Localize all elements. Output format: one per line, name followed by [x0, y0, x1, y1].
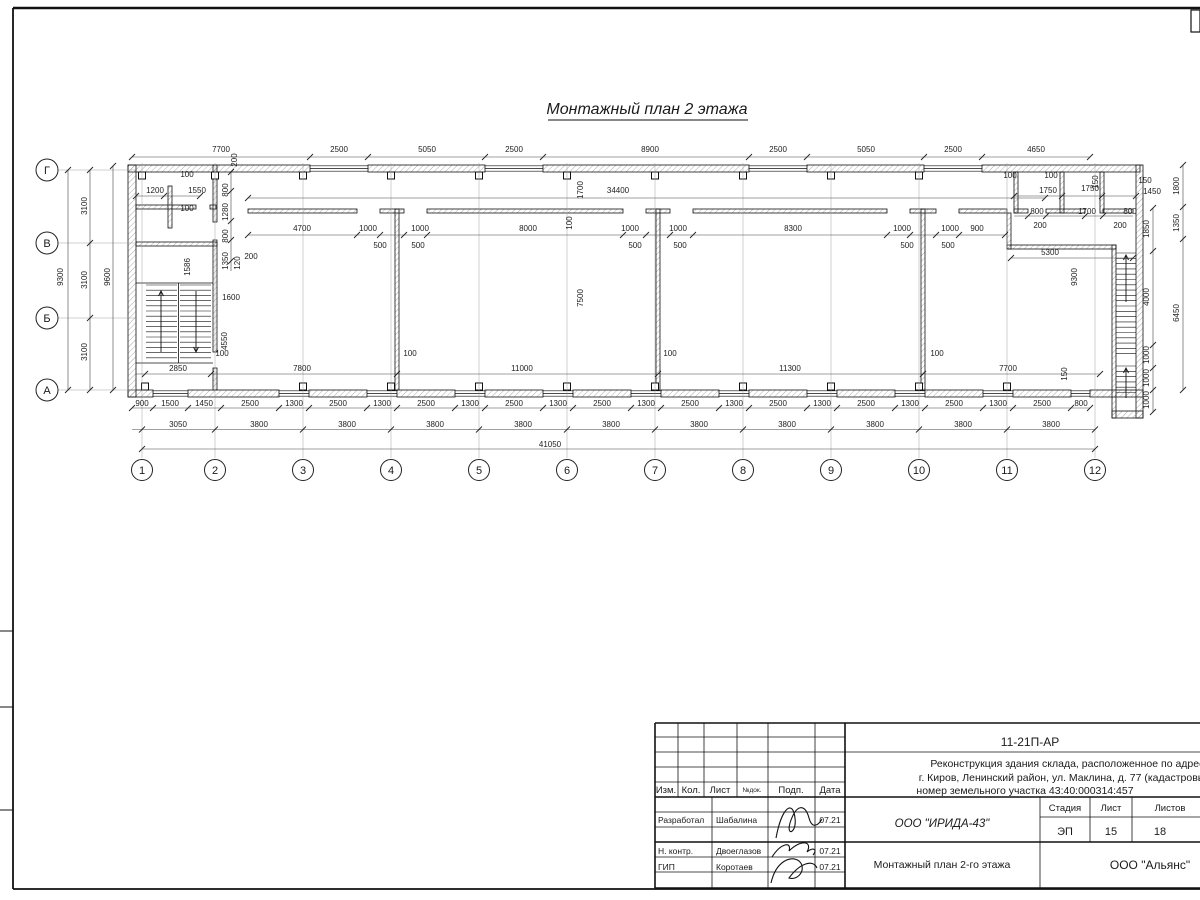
dim-label: 100: [403, 349, 417, 358]
dim-label: 500: [900, 241, 914, 250]
dim-label: 1000: [669, 224, 687, 233]
dim-label: 2500: [944, 145, 962, 154]
dim-label: 9600: [103, 268, 112, 286]
axis-number: 6: [564, 465, 570, 477]
tb-project-code: 11-21П-АР: [1001, 735, 1059, 749]
dim-label: 3100: [80, 343, 89, 361]
dim-label: 34400: [607, 186, 630, 195]
tb-col-list: Лист: [710, 785, 731, 796]
sheet-frame: [0, 8, 1200, 889]
wall: [959, 209, 1007, 213]
dim-label: 2500: [241, 399, 259, 408]
axis-number: 10: [913, 465, 925, 477]
dim-label: 8000: [519, 224, 537, 233]
wall: [1007, 245, 1116, 249]
axis-number: 4: [388, 465, 394, 477]
tb-date-1: 07.21: [819, 815, 841, 825]
dim-label: 5050: [857, 145, 875, 154]
dim-label: 900: [135, 399, 149, 408]
dim-label: 1000: [1142, 391, 1151, 409]
axis-number: 7: [652, 465, 658, 477]
title-block: Изм. Кол. Лист №док. Подп. Дата 11-21П-А…: [655, 723, 1200, 888]
dim-label: 1300: [637, 399, 655, 408]
tb-col-podp: Подп.: [778, 785, 803, 796]
axis-letter: А: [43, 385, 51, 397]
dim-label: 2500: [329, 399, 347, 408]
dim-label: 2500: [857, 399, 875, 408]
wall: [807, 165, 924, 172]
dim-label: 41050: [539, 440, 562, 449]
tb-project-line3: номер земельного участка 43:40:000314:45…: [916, 785, 1133, 797]
dim-label: 3100: [80, 197, 89, 215]
tb-project-line2: г. Киров, Ленинский район, ул. Маклина, …: [919, 772, 1200, 784]
dim-label: 2500: [330, 145, 348, 154]
dim-label: 6450: [1172, 304, 1181, 322]
dim-label: 1000: [411, 224, 429, 233]
dim-label: 4650: [1027, 145, 1045, 154]
wall: [309, 390, 367, 397]
dim-label: 1300: [725, 399, 743, 408]
dim-label: 800: [221, 183, 230, 197]
dim-label: 3800: [778, 420, 796, 429]
dim-label: 100: [180, 204, 194, 213]
drawing-sheet: Монтажный план 2 этажа 77002500505025008…: [0, 0, 1200, 900]
dim-label: 100: [1003, 171, 1017, 180]
dim-label: 3800: [602, 420, 620, 429]
dim-label: 3800: [1042, 420, 1060, 429]
dim-label: 4700: [293, 224, 311, 233]
dim-label: 2500: [505, 399, 523, 408]
dim-label: 1280: [221, 203, 230, 221]
dim-label: 7500: [576, 289, 585, 307]
frame-corner-box: [1191, 10, 1200, 32]
dim-label: 100: [1044, 171, 1058, 180]
dim-label: 1550: [188, 186, 206, 195]
wall: [128, 165, 136, 397]
dim-label: 1850: [1142, 220, 1151, 238]
dim-label: 100: [215, 349, 229, 358]
dim-label: 11300: [779, 364, 801, 373]
dim-label: 2500: [505, 145, 523, 154]
dim-label: 1000: [1142, 346, 1151, 364]
axis-number: 12: [1089, 465, 1101, 477]
dim-label: 8900: [641, 145, 659, 154]
dim-label: 5300: [1041, 248, 1059, 257]
dim-label: 2500: [681, 399, 699, 408]
dim-label: 3100: [80, 271, 89, 289]
wall: [661, 390, 719, 397]
dim-label: 11000: [511, 364, 533, 373]
dim-label: 3800: [514, 420, 532, 429]
dim-label: 1350: [221, 252, 230, 270]
wall: [368, 165, 485, 172]
dim-label: 1450: [1143, 187, 1161, 196]
dim-label: 1600: [222, 293, 240, 302]
wall: [910, 209, 936, 213]
tb-col-kol: Кол.: [682, 785, 701, 796]
dim-label: 3800: [866, 420, 884, 429]
wall: [1014, 209, 1028, 213]
tb-date-3: 07.21: [819, 862, 841, 872]
wall: [693, 209, 887, 213]
wall: [395, 209, 399, 390]
wall: [749, 390, 807, 397]
tb-col-data: Дата: [819, 785, 841, 796]
dim-label: 1300: [901, 399, 919, 408]
dim-label: 2500: [1033, 399, 1051, 408]
dim-label: 150: [1138, 176, 1152, 185]
tb-company: ООО "Альянс": [1110, 858, 1190, 872]
dim-label: 100: [663, 349, 677, 358]
wall: [573, 390, 631, 397]
tb-role-2: Н. контр.: [658, 846, 693, 856]
wall: [380, 209, 404, 213]
tb-name-2: Двоеглазов: [716, 846, 762, 856]
tb-name-1: Шабалина: [716, 815, 757, 825]
dim-label: 1700: [1078, 207, 1096, 216]
dim-label: 1000: [1142, 369, 1151, 387]
tb-date-2: 07.21: [819, 846, 841, 856]
dim-label: 120: [233, 256, 242, 270]
wall: [1090, 390, 1143, 397]
dim-label: 1350: [1172, 214, 1181, 232]
dim-label: 1000: [621, 224, 639, 233]
axis-number: 9: [828, 465, 834, 477]
wall: [921, 209, 925, 390]
wall: [646, 209, 670, 213]
dim-label: 3800: [426, 420, 444, 429]
dim-label: 100: [930, 349, 944, 358]
wall: [397, 390, 455, 397]
dim-label: 900: [970, 224, 984, 233]
dim-label: 2500: [593, 399, 611, 408]
tb-role-3: ГИП: [658, 862, 675, 872]
dim-label: 100: [565, 216, 574, 230]
dim-label: 1300: [813, 399, 831, 408]
dim-label: 5050: [418, 145, 436, 154]
dim-label: 1700: [576, 181, 585, 199]
dim-label: 8300: [784, 224, 802, 233]
wall: [837, 390, 895, 397]
dim-label: 100: [180, 170, 194, 179]
wall: [248, 209, 357, 213]
dim-label: 1000: [941, 224, 959, 233]
dim-label: 150: [1060, 367, 1069, 381]
axis-letter: В: [43, 238, 50, 250]
dim-label: 2500: [769, 399, 787, 408]
tb-col-izm: Изм.: [656, 785, 676, 796]
wall: [136, 242, 217, 246]
wall: [188, 390, 279, 397]
dim-label: 500: [628, 241, 642, 250]
axis-number: 8: [740, 465, 746, 477]
dim-label: 1300: [461, 399, 479, 408]
dim-label: 1800: [1172, 177, 1181, 195]
wall: [543, 165, 749, 172]
wall: [1112, 411, 1143, 418]
dim-label: 3800: [954, 420, 972, 429]
axis-letter: Б: [43, 313, 50, 325]
wall: [656, 209, 660, 390]
axis-number: 5: [476, 465, 482, 477]
tb-stage-value: ЭП: [1057, 826, 1073, 838]
wall: [1007, 213, 1011, 249]
dim-label: 9300: [1070, 268, 1079, 286]
dim-label: 200: [1113, 221, 1127, 230]
dim-label: 2500: [769, 145, 787, 154]
axis-number: 1: [139, 465, 145, 477]
dim-label: 3800: [250, 420, 268, 429]
tb-doc-title: Монтажный план 2-го этажа: [874, 859, 1011, 871]
signature-3: [771, 859, 817, 883]
dim-label: 500: [373, 241, 387, 250]
axis-number: 3: [300, 465, 306, 477]
dim-label: 1300: [373, 399, 391, 408]
dim-label: 7700: [999, 364, 1017, 373]
dim-label: 3800: [690, 420, 708, 429]
dim-label: 3050: [169, 420, 187, 429]
tb-project-line1: Реконструкция здания склада, расположенн…: [930, 758, 1200, 770]
dim-label: 800: [221, 229, 230, 243]
dim-label: 4000: [1142, 288, 1151, 306]
dim-label: 150: [1091, 175, 1100, 189]
tb-sheets-label: Листов: [1155, 803, 1186, 814]
dim-label: 1300: [989, 399, 1007, 408]
dim-label: 500: [411, 241, 425, 250]
wall: [485, 390, 543, 397]
dim-label: 1200: [146, 186, 164, 195]
tb-col-ndok: №док.: [742, 787, 761, 794]
wall: [925, 390, 983, 397]
tb-sheets-total: 18: [1154, 826, 1166, 838]
dim-label: 1500: [161, 399, 179, 408]
dim-label: 1300: [549, 399, 567, 408]
dim-label: 1450: [195, 399, 213, 408]
tb-stage-label: Стадия: [1049, 803, 1081, 814]
dim-label: 4550: [220, 332, 229, 350]
axis-number: 2: [212, 465, 218, 477]
dim-label: 1586: [183, 258, 192, 276]
dim-label: 200: [244, 252, 258, 261]
wall: [427, 209, 623, 213]
dim-label: 1000: [893, 224, 911, 233]
column: [142, 383, 149, 390]
axis-number: 11: [1001, 465, 1012, 477]
tb-sheet-number: 15: [1105, 826, 1117, 838]
dim-label: 2500: [945, 399, 963, 408]
tb-sheet-label: Лист: [1101, 803, 1122, 814]
dim-label: 800: [1074, 399, 1088, 408]
wall: [1060, 172, 1064, 213]
floor-plan: [128, 165, 1143, 418]
plan-title: Монтажный план 2 этажа: [546, 101, 747, 118]
dim-label: 2500: [417, 399, 435, 408]
dim-label: 1000: [359, 224, 377, 233]
dim-label: 7700: [212, 145, 230, 154]
axis-letter: Г: [44, 165, 50, 177]
wall: [1112, 245, 1116, 418]
dim-label: 1750: [1039, 186, 1057, 195]
dim-label: 800: [1123, 207, 1137, 216]
dim-label: 200: [1033, 221, 1047, 230]
wall: [168, 186, 172, 228]
tb-org: ООО "ИРИДА-43": [895, 818, 991, 830]
dim-label: 9300: [56, 268, 65, 286]
signature-2: [772, 843, 815, 857]
dim-label: 2850: [169, 364, 187, 373]
dim-label: 200: [230, 153, 239, 167]
dim-label: 1300: [285, 399, 303, 408]
dim-label: 500: [941, 241, 955, 250]
wall: [128, 165, 310, 172]
dim-label: 7800: [293, 364, 311, 373]
dimension-layer: 7700250050502500890025005050250046502003…: [36, 145, 1186, 481]
wall: [1013, 390, 1071, 397]
dim-label: 3800: [338, 420, 356, 429]
dim-label: 800: [1030, 207, 1044, 216]
tb-name-3: Коротаев: [716, 862, 753, 872]
dim-label: 500: [673, 241, 687, 250]
wall: [1100, 172, 1104, 213]
tb-role-1: Разработал: [658, 815, 704, 825]
